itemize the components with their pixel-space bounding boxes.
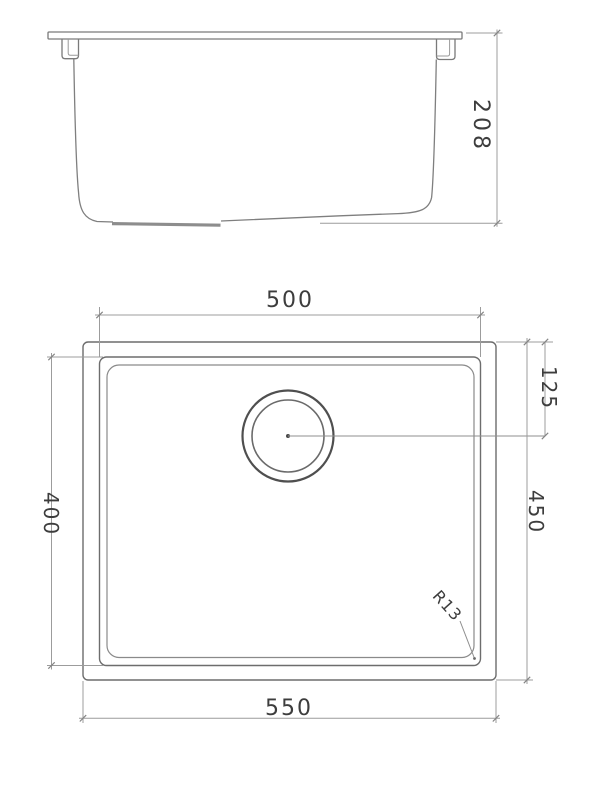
mounting-clip-right-inner: [437, 39, 450, 56]
dim-label-bowl-width: 500: [266, 290, 314, 312]
dim-label-overall-width: 550: [265, 698, 313, 720]
sink-drawing-svg: [0, 0, 606, 800]
technical-drawing-canvas: 208 500 125 400 450 R13 550: [0, 0, 606, 800]
side-view-rim: [48, 32, 462, 39]
mounting-clip-left-inner: [68, 39, 78, 55]
side-view-right-wall: [221, 60, 436, 222]
side-view: [48, 30, 503, 227]
dim-label-overall-depth: 450: [526, 490, 546, 534]
plan-view: [47, 307, 553, 723]
radius-leader-end: [473, 657, 476, 660]
dim-label-height: 208: [469, 99, 491, 153]
plan-bowl-rim: [100, 357, 481, 666]
plan-bowl-bottom: [107, 365, 474, 658]
side-view-left-wall: [74, 59, 113, 222]
dim-label-drain-offset: 125: [539, 366, 559, 410]
dim-label-bowl-depth: 400: [41, 492, 61, 536]
plan-outer-edge: [83, 342, 496, 680]
side-view-drain-channel: [112, 224, 221, 226]
radius-leader-line: [460, 621, 475, 659]
